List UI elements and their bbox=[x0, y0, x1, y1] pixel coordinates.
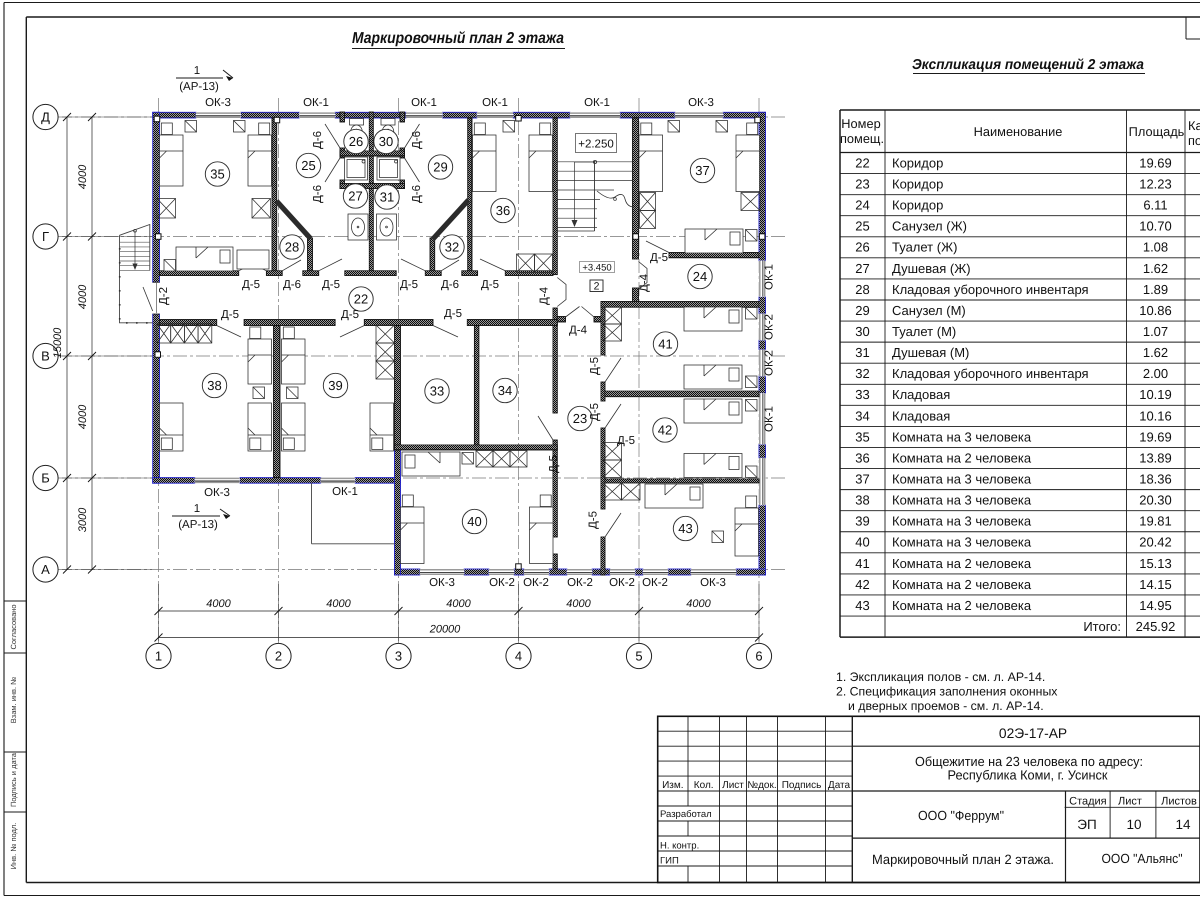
svg-text:20000: 20000 bbox=[429, 624, 461, 636]
svg-text:36: 36 bbox=[855, 450, 869, 465]
svg-text:Д-5: Д-5 bbox=[221, 309, 239, 321]
svg-text:41: 41 bbox=[855, 556, 869, 571]
svg-text:ОК-2: ОК-2 bbox=[642, 577, 668, 589]
svg-text:Подпись и дата: Подпись и дата bbox=[9, 752, 18, 807]
svg-text:3: 3 bbox=[395, 649, 402, 664]
svg-text:Кладовая: Кладовая bbox=[892, 387, 950, 402]
svg-text:10: 10 bbox=[1126, 817, 1141, 832]
svg-text:1.89: 1.89 bbox=[1143, 282, 1168, 297]
svg-text:3000: 3000 bbox=[77, 507, 89, 532]
svg-text:ОК-2: ОК-2 bbox=[523, 577, 549, 589]
svg-text:Д-2: Д-2 bbox=[158, 287, 170, 305]
svg-text:Д-6: Д-6 bbox=[411, 185, 423, 203]
svg-text:4000: 4000 bbox=[566, 598, 591, 610]
svg-text:ОК-1: ОК-1 bbox=[482, 97, 508, 109]
svg-text:ОК-2: ОК-2 bbox=[567, 577, 593, 589]
svg-text:1. Экспликация полов - см. л.: 1. Экспликация полов - см. л. АР-14. bbox=[836, 670, 1045, 684]
svg-text:(АР-13): (АР-13) bbox=[179, 81, 219, 93]
svg-text:245.92: 245.92 bbox=[1136, 619, 1176, 634]
svg-text:4000: 4000 bbox=[446, 598, 471, 610]
svg-text:Площадь: Площадь bbox=[1129, 124, 1185, 139]
svg-text:Д-5: Д-5 bbox=[322, 279, 340, 291]
svg-text:Душевая (Ж): Душевая (Ж) bbox=[892, 261, 971, 276]
svg-text:Инв. № подл.: Инв. № подл. bbox=[9, 823, 18, 870]
svg-text:Д-6: Д-6 bbox=[312, 131, 324, 149]
svg-text:31: 31 bbox=[380, 190, 394, 205]
svg-text:Комната на 3 человека: Комната на 3 человека bbox=[892, 514, 1032, 529]
svg-text:+3.450: +3.450 bbox=[582, 263, 611, 274]
svg-text:40: 40 bbox=[467, 514, 481, 529]
svg-text:14: 14 bbox=[1175, 817, 1191, 832]
svg-text:ОК-1: ОК-1 bbox=[332, 486, 358, 498]
svg-text:ОК-3: ОК-3 bbox=[700, 577, 726, 589]
svg-text:2. Спецификация заполнения око: 2. Спецификация заполнения оконных bbox=[836, 685, 1058, 699]
svg-text:24: 24 bbox=[693, 269, 707, 284]
svg-text:№док.: №док. bbox=[747, 780, 776, 791]
svg-text:Лист: Лист bbox=[1118, 796, 1142, 808]
svg-text:Взам. инв. №: Взам. инв. № bbox=[9, 677, 18, 723]
svg-text:Дата: Дата bbox=[828, 780, 851, 791]
svg-text:ОК-2: ОК-2 bbox=[764, 350, 776, 376]
svg-text:37: 37 bbox=[855, 471, 869, 486]
svg-text:22: 22 bbox=[855, 155, 869, 170]
svg-text:Кладовая уборочного инвентаря: Кладовая уборочного инвентаря bbox=[892, 366, 1089, 381]
svg-text:по: по bbox=[1188, 133, 1200, 148]
svg-text:20.42: 20.42 bbox=[1139, 535, 1172, 550]
svg-text:15.13: 15.13 bbox=[1139, 556, 1172, 571]
svg-text:33: 33 bbox=[430, 384, 444, 399]
svg-text:26: 26 bbox=[349, 134, 363, 149]
svg-text:ОК-2: ОК-2 bbox=[489, 577, 515, 589]
svg-text:34: 34 bbox=[855, 408, 869, 423]
svg-text:25: 25 bbox=[301, 158, 315, 173]
svg-text:В: В bbox=[41, 349, 50, 364]
svg-text:Б: Б bbox=[41, 471, 50, 486]
svg-text:4000: 4000 bbox=[77, 404, 89, 429]
svg-text:ОК-1: ОК-1 bbox=[584, 97, 610, 109]
svg-text:Кладовая уборочного инвентаря: Кладовая уборочного инвентаря bbox=[892, 282, 1089, 297]
svg-text:Номер: Номер bbox=[841, 116, 880, 131]
svg-text:Листов: Листов bbox=[1161, 796, 1197, 808]
svg-text:Разработал: Разработал bbox=[660, 809, 712, 820]
svg-text:4000: 4000 bbox=[686, 598, 711, 610]
svg-text:25: 25 bbox=[855, 219, 869, 234]
svg-text:41: 41 bbox=[658, 337, 672, 352]
svg-text:Согласовано: Согласовано bbox=[9, 604, 18, 649]
svg-text:4000: 4000 bbox=[77, 164, 89, 189]
svg-text:Д: Д bbox=[41, 110, 50, 125]
svg-text:Д-5: Д-5 bbox=[444, 308, 462, 320]
svg-text:ОК-3: ОК-3 bbox=[429, 577, 455, 589]
svg-text:Комната на 3 человека: Комната на 3 человека bbox=[892, 535, 1032, 550]
svg-text:и дверных проемов - см. л. АР-: и дверных проемов - см. л. АР-14. bbox=[848, 699, 1044, 713]
svg-text:Комната на 2 человека: Комната на 2 человека bbox=[892, 556, 1032, 571]
svg-text:5: 5 bbox=[635, 649, 642, 664]
svg-text:Маркировочный план 2 этажа.: Маркировочный план 2 этажа. bbox=[872, 852, 1054, 867]
svg-text:Д-6: Д-6 bbox=[441, 279, 459, 291]
svg-text:14.15: 14.15 bbox=[1139, 577, 1172, 592]
svg-text:10.19: 10.19 bbox=[1139, 387, 1172, 402]
svg-text:Экспликация помещений 2 этажа: Экспликация помещений 2 этажа bbox=[912, 57, 1144, 73]
svg-text:Д-6: Д-6 bbox=[312, 185, 324, 203]
svg-text:19.81: 19.81 bbox=[1139, 514, 1172, 529]
svg-text:Д-5: Д-5 bbox=[341, 309, 359, 321]
svg-text:40: 40 bbox=[855, 535, 869, 550]
svg-text:12.23: 12.23 bbox=[1139, 177, 1172, 192]
svg-text:ОК-1: ОК-1 bbox=[764, 264, 776, 290]
svg-text:29: 29 bbox=[855, 303, 869, 318]
svg-text:28: 28 bbox=[285, 240, 299, 255]
svg-text:4000: 4000 bbox=[326, 598, 351, 610]
svg-text:Д-5: Д-5 bbox=[589, 357, 601, 375]
svg-text:10.70: 10.70 bbox=[1139, 219, 1172, 234]
svg-text:ЭП: ЭП bbox=[1077, 817, 1096, 832]
svg-text:Комната на 3 человека: Комната на 3 человека bbox=[892, 493, 1032, 508]
svg-text:Изм.: Изм. bbox=[662, 780, 683, 791]
svg-text:Комната на 3 человека: Комната на 3 человека bbox=[892, 429, 1032, 444]
svg-text:+2.250: +2.250 bbox=[578, 139, 614, 151]
svg-text:43: 43 bbox=[678, 521, 692, 536]
svg-text:33: 33 bbox=[855, 387, 869, 402]
svg-text:Комната на 2 человека: Комната на 2 человека bbox=[892, 577, 1032, 592]
svg-text:Подпись: Подпись bbox=[782, 780, 822, 791]
svg-text:35: 35 bbox=[210, 167, 224, 182]
svg-text:28: 28 bbox=[855, 282, 869, 297]
svg-text:Д-5: Д-5 bbox=[481, 279, 499, 291]
svg-text:Комната на 2 человека: Комната на 2 человека bbox=[892, 598, 1032, 613]
svg-text:43: 43 bbox=[855, 598, 869, 613]
svg-text:Д-4: Д-4 bbox=[539, 286, 551, 305]
svg-text:39: 39 bbox=[328, 378, 342, 393]
svg-text:А: А bbox=[41, 562, 50, 577]
svg-text:Д-5: Д-5 bbox=[242, 279, 260, 291]
svg-text:38: 38 bbox=[207, 378, 221, 393]
svg-text:15000: 15000 bbox=[52, 327, 64, 358]
svg-text:2: 2 bbox=[275, 649, 282, 664]
svg-text:Душевая (М): Душевая (М) bbox=[892, 345, 969, 360]
svg-text:31: 31 bbox=[855, 345, 869, 360]
svg-text:1.08: 1.08 bbox=[1143, 240, 1168, 255]
svg-text:ГИП: ГИП bbox=[660, 856, 679, 867]
svg-text:4: 4 bbox=[515, 649, 522, 664]
svg-text:19.69: 19.69 bbox=[1139, 155, 1172, 170]
svg-text:Лист: Лист bbox=[722, 780, 744, 791]
svg-text:6.11: 6.11 bbox=[1143, 198, 1167, 213]
svg-text:39: 39 bbox=[855, 514, 869, 529]
svg-text:Н. контр.: Н. контр. bbox=[660, 841, 699, 852]
svg-text:Итого:: Итого: bbox=[1083, 619, 1121, 634]
svg-text:13.89: 13.89 bbox=[1139, 450, 1172, 465]
svg-text:Комната на 2 человека: Комната на 2 человека bbox=[892, 450, 1032, 465]
svg-text:10.86: 10.86 bbox=[1139, 303, 1172, 318]
svg-text:34: 34 bbox=[498, 383, 512, 398]
svg-text:23: 23 bbox=[855, 177, 869, 192]
svg-text:Ка: Ка bbox=[1188, 118, 1200, 133]
svg-text:1: 1 bbox=[155, 649, 162, 664]
svg-text:ОК-3: ОК-3 bbox=[205, 97, 231, 109]
svg-text:1.62: 1.62 bbox=[1143, 345, 1168, 360]
svg-text:Д-6: Д-6 bbox=[411, 131, 423, 149]
svg-text:35: 35 bbox=[855, 429, 869, 444]
svg-text:1: 1 bbox=[194, 65, 200, 77]
svg-text:Республика Коми, г. Усинск: Республика Коми, г. Усинск bbox=[948, 768, 1108, 783]
svg-text:Наименование: Наименование bbox=[974, 124, 1063, 139]
svg-text:Д-4: Д-4 bbox=[639, 273, 651, 292]
svg-text:Д-5: Д-5 bbox=[650, 252, 668, 264]
svg-text:Санузел (Ж): Санузел (Ж) bbox=[892, 219, 967, 234]
svg-text:Д-6: Д-6 bbox=[283, 279, 301, 291]
svg-text:ОК-3: ОК-3 bbox=[688, 97, 714, 109]
svg-text:20.30: 20.30 bbox=[1139, 493, 1172, 508]
svg-text:1.07: 1.07 bbox=[1143, 324, 1168, 339]
svg-text:22: 22 bbox=[354, 292, 368, 307]
svg-text:Коридор: Коридор bbox=[892, 198, 943, 213]
svg-text:ООО "Альянс": ООО "Альянс" bbox=[1102, 851, 1183, 866]
svg-text:ОК-1: ОК-1 bbox=[411, 97, 437, 109]
svg-text:18.36: 18.36 bbox=[1139, 471, 1172, 486]
svg-text:29: 29 bbox=[433, 160, 447, 175]
svg-text:Г: Г bbox=[42, 229, 49, 244]
svg-text:24: 24 bbox=[855, 198, 869, 213]
svg-text:37: 37 bbox=[695, 163, 709, 178]
svg-text:2.00: 2.00 bbox=[1143, 366, 1168, 381]
svg-text:Санузел (М): Санузел (М) bbox=[892, 303, 966, 318]
svg-text:Туалет (М): Туалет (М) bbox=[892, 324, 956, 339]
svg-text:Стадия: Стадия bbox=[1069, 796, 1107, 808]
svg-text:26: 26 bbox=[855, 240, 869, 255]
svg-text:4000: 4000 bbox=[77, 284, 89, 309]
svg-text:14.95: 14.95 bbox=[1139, 598, 1172, 613]
svg-text:Коридор: Коридор bbox=[892, 155, 943, 170]
svg-text:30: 30 bbox=[379, 134, 393, 149]
svg-text:27: 27 bbox=[855, 261, 869, 276]
svg-text:Кол.: Кол. bbox=[694, 780, 714, 791]
svg-text:ОК-2: ОК-2 bbox=[609, 577, 635, 589]
svg-text:Д-5: Д-5 bbox=[588, 511, 600, 529]
svg-text:Комната на 3 человека: Комната на 3 человека bbox=[892, 471, 1032, 486]
svg-text:(АР-13): (АР-13) bbox=[178, 519, 218, 531]
svg-text:Туалет (Ж): Туалет (Ж) bbox=[892, 240, 957, 255]
svg-text:36: 36 bbox=[496, 203, 510, 218]
svg-text:Д-5: Д-5 bbox=[589, 403, 601, 421]
svg-text:ОК-1: ОК-1 bbox=[764, 406, 776, 432]
svg-text:Д-5: Д-5 bbox=[400, 279, 418, 291]
svg-text:1: 1 bbox=[194, 503, 200, 515]
svg-text:Д-5: Д-5 bbox=[617, 435, 635, 447]
svg-text:Кладовая: Кладовая bbox=[892, 408, 950, 423]
svg-text:1.62: 1.62 bbox=[1143, 261, 1168, 276]
svg-text:Маркировочный план 2 этажа: Маркировочный план 2 этажа bbox=[352, 30, 564, 47]
svg-text:27: 27 bbox=[348, 189, 362, 204]
svg-text:19.69: 19.69 bbox=[1139, 429, 1172, 444]
svg-text:ОК-3: ОК-3 bbox=[204, 487, 230, 499]
svg-text:42: 42 bbox=[658, 423, 672, 438]
svg-text:2: 2 bbox=[594, 281, 600, 293]
svg-text:32: 32 bbox=[855, 366, 869, 381]
svg-text:30: 30 bbox=[855, 324, 869, 339]
svg-text:6: 6 bbox=[755, 649, 762, 664]
svg-text:помещ.: помещ. bbox=[840, 131, 884, 146]
svg-text:32: 32 bbox=[445, 240, 459, 255]
svg-text:ООО "Феррум": ООО "Феррум" bbox=[918, 808, 1004, 823]
svg-text:10.16: 10.16 bbox=[1139, 408, 1172, 423]
svg-text:ОК-2: ОК-2 bbox=[764, 314, 776, 340]
svg-text:38: 38 bbox=[855, 493, 869, 508]
svg-text:ОК-1: ОК-1 bbox=[303, 97, 329, 109]
svg-text:02Э-17-АР: 02Э-17-АР bbox=[999, 726, 1067, 741]
svg-text:4000: 4000 bbox=[206, 598, 231, 610]
svg-text:Коридор: Коридор bbox=[892, 177, 943, 192]
svg-text:23: 23 bbox=[573, 411, 587, 426]
svg-text:Д-4: Д-4 bbox=[569, 325, 588, 337]
svg-text:Д-5: Д-5 bbox=[548, 455, 560, 473]
svg-text:42: 42 bbox=[855, 577, 869, 592]
